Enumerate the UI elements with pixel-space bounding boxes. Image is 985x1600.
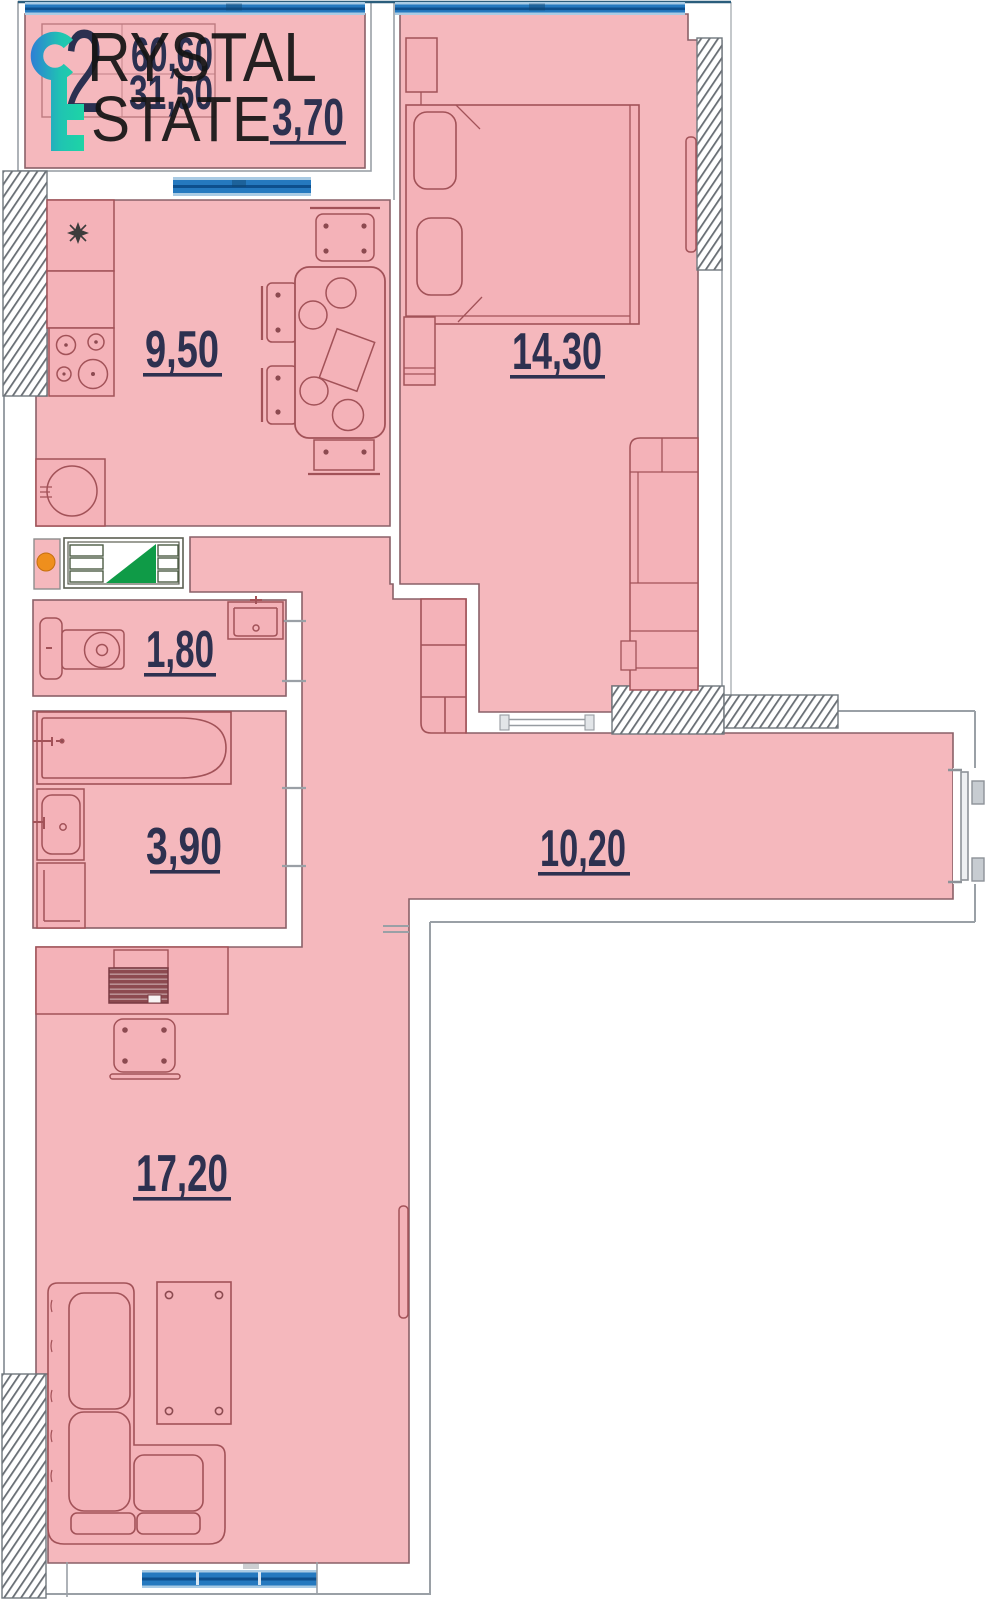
svg-text:10,20: 10,20: [540, 820, 626, 878]
svg-text:9,50: 9,50: [145, 321, 219, 379]
svg-text:3,90: 3,90: [146, 818, 222, 876]
svg-text:14,30: 14,30: [512, 323, 602, 381]
svg-text:3,70: 3,70: [272, 89, 344, 147]
svg-text:1,80: 1,80: [146, 621, 214, 679]
svg-text:17,20: 17,20: [136, 1145, 228, 1203]
svg-text:STATE: STATE: [91, 83, 271, 155]
